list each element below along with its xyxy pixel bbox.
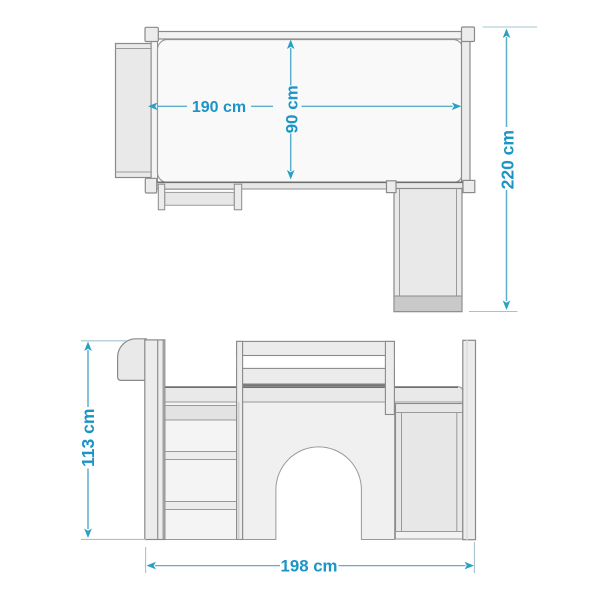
svg-text:220 cm: 220 cm — [498, 130, 518, 189]
svg-text:190 cm: 190 cm — [192, 99, 246, 116]
svg-text:113 cm: 113 cm — [78, 409, 98, 467]
svg-text:198 cm: 198 cm — [281, 556, 338, 575]
svg-text:90 cm: 90 cm — [283, 85, 302, 133]
